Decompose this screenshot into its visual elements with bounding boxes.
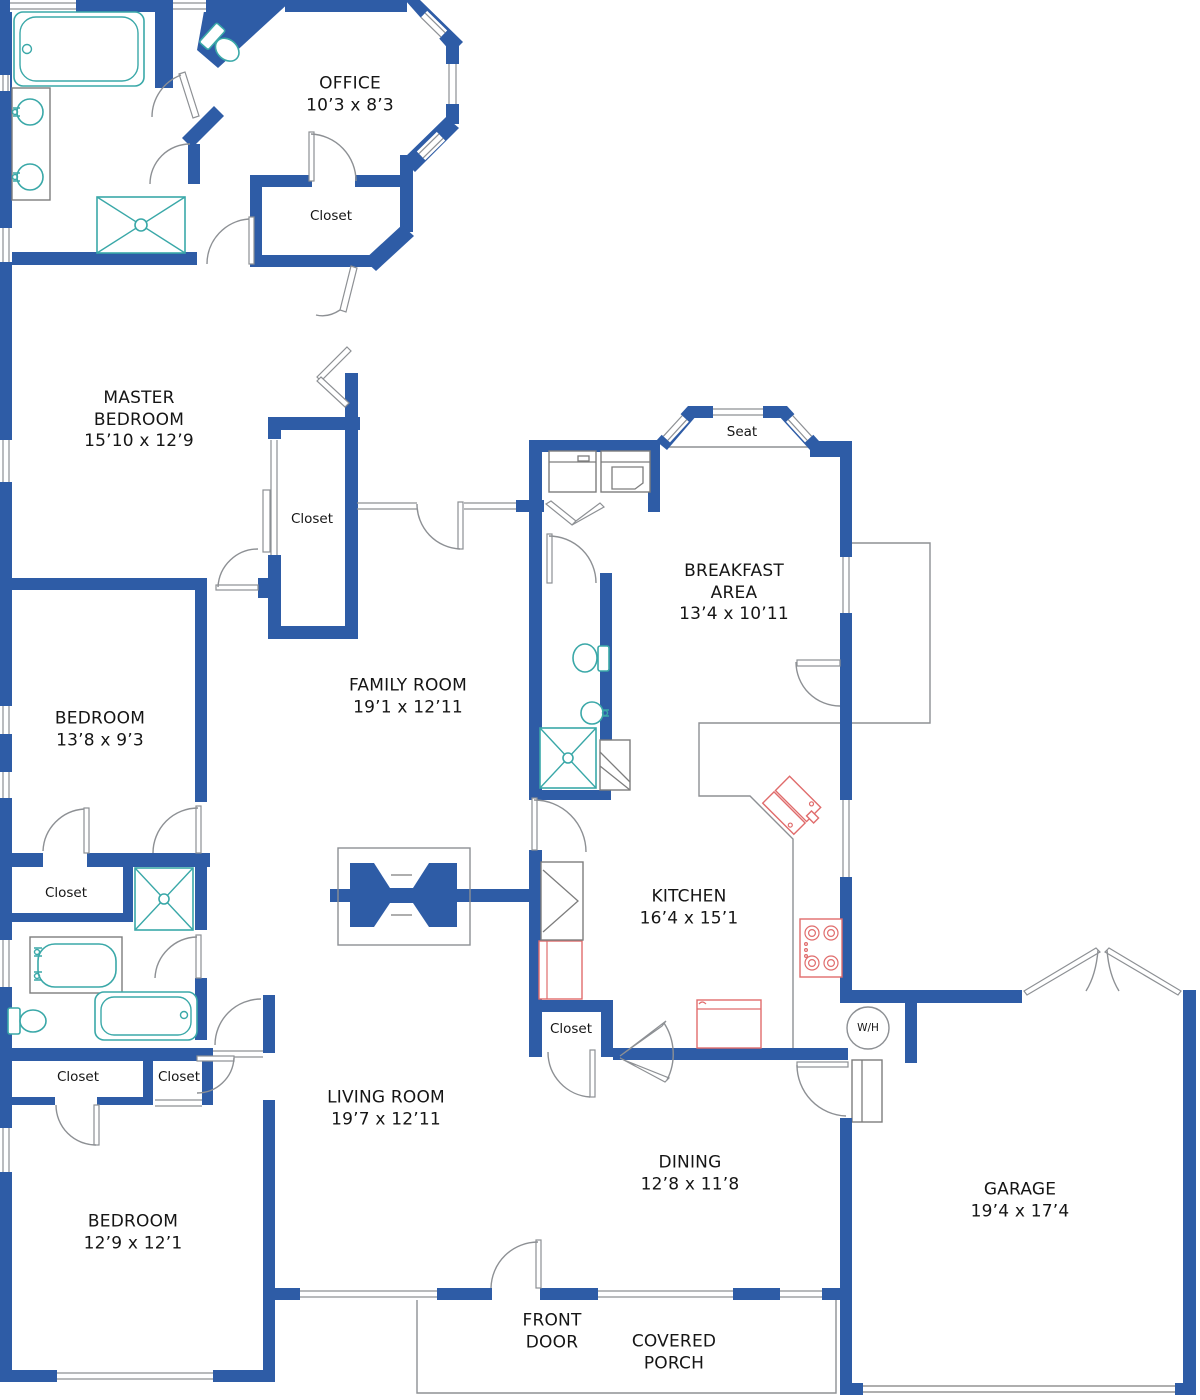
fireplace xyxy=(338,848,470,945)
porch-outline xyxy=(417,1300,836,1393)
garage-rear-doors xyxy=(1024,948,1181,995)
pantry-cabinet xyxy=(600,740,630,790)
room-label-family-room: FAMILY ROOM19’1 x 12’11 xyxy=(349,676,467,719)
room-label-garage: GARAGE19’4 x 17’4 xyxy=(971,1180,1070,1223)
master-shower xyxy=(97,197,185,253)
breakfast-deck-door xyxy=(796,660,840,706)
middle-bath-shower xyxy=(540,728,596,788)
master-entry-door xyxy=(150,144,190,184)
garage-entry-door xyxy=(797,1062,848,1116)
deck-outline xyxy=(852,543,930,723)
room-label-bedroom-middle: BEDROOM13’8 x 9’3 xyxy=(55,709,145,752)
closet-label-bedroom-left: Closet xyxy=(57,1069,99,1085)
kitchen-closet-door xyxy=(548,1050,595,1097)
closet-left-door xyxy=(56,1105,99,1145)
laundry-bifold-doors xyxy=(546,501,604,525)
master-vanity xyxy=(12,88,50,200)
closet-label-master: Closet xyxy=(291,511,333,527)
closet-label-hall: Closet xyxy=(45,885,87,901)
front-door-label: FRONTDOOR xyxy=(522,1311,581,1354)
master-bathtub xyxy=(14,12,144,86)
kitchen-hall-door xyxy=(532,798,586,852)
closet-label-kitchen: Closet xyxy=(550,1021,592,1037)
room-label-kitchen: KITCHEN16’4 x 15’1 xyxy=(640,887,739,930)
room-label-breakfast-area: BREAKFASTAREA13’4 x 10’11 xyxy=(679,561,789,626)
floor-plan: OFFICE10’3 x 8’3 MASTERBEDROOM15’10 x 12… xyxy=(0,0,1200,1400)
bath-to-hall-door xyxy=(207,217,254,264)
hall-bath-vanity xyxy=(30,937,122,993)
refrigerator xyxy=(539,941,582,999)
office-hall-door xyxy=(316,266,357,316)
closet-label-office: Closet xyxy=(310,208,352,224)
hall-bath-toilet xyxy=(8,1008,46,1034)
seat-label: Seat xyxy=(727,424,757,440)
room-label-living-room: LIVING ROOM19’7 x 12’11 xyxy=(327,1088,445,1131)
room-label-dining: DINING12’8 x 11’8 xyxy=(641,1153,740,1196)
dryer xyxy=(601,451,650,492)
garage-step xyxy=(852,1060,882,1122)
front-door-swing xyxy=(491,1240,541,1288)
covered-porch-label: COVEREDPORCH xyxy=(632,1332,716,1375)
bathroom-door xyxy=(547,534,596,583)
dishwasher xyxy=(697,1000,761,1048)
kitchen-counter xyxy=(699,723,842,1048)
garage-door-line xyxy=(863,1386,1175,1392)
closet-label-bedroom-right: Closet xyxy=(158,1069,200,1085)
family-room-door xyxy=(417,502,463,549)
middle-bedroom-door xyxy=(153,806,201,853)
room-label-office: OFFICE10’3 x 8’3 xyxy=(306,74,394,117)
master-bedroom-door xyxy=(216,549,258,590)
middle-bath-toilet xyxy=(573,644,609,672)
closet-slider-panel xyxy=(263,490,270,552)
stove xyxy=(800,919,842,977)
corner-cabinet xyxy=(541,862,583,940)
hall-living-door xyxy=(215,999,261,1045)
water-heater-label: W/H xyxy=(857,1022,879,1034)
room-label-master-bedroom: MASTERBEDROOM15’10 x 12’9 xyxy=(84,388,194,453)
hall-bath-shower xyxy=(135,868,193,930)
room-label-bedroom-bottom: BEDROOM12’9 x 12’1 xyxy=(84,1212,183,1255)
hall-bath-door xyxy=(155,935,201,978)
office-closet-door xyxy=(309,132,356,181)
hall-bathtub xyxy=(95,992,197,1040)
middle-bedroom-hall-door xyxy=(43,808,89,853)
washer xyxy=(549,451,596,492)
kitchen-sink xyxy=(763,776,825,838)
